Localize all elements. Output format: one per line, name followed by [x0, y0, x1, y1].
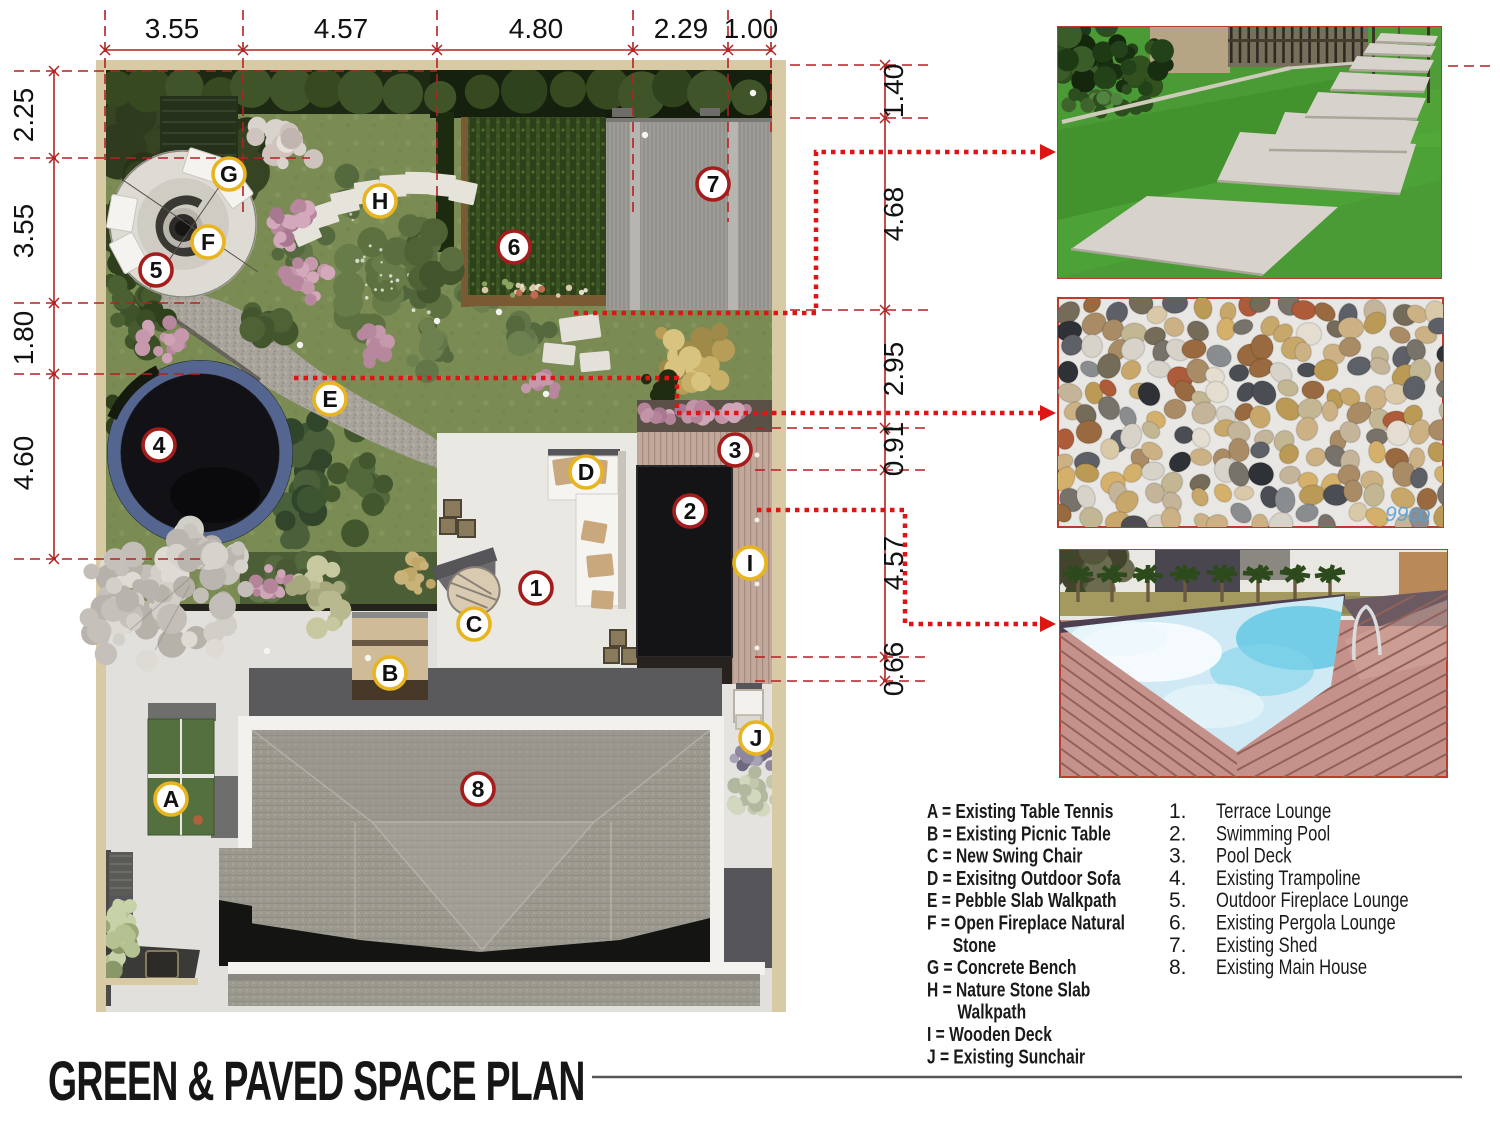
svg-text:H: H: [372, 188, 389, 214]
svg-text:4.60: 4.60: [8, 436, 39, 491]
svg-text:5.: 5.: [1169, 889, 1187, 912]
svg-text:A: A: [163, 786, 180, 812]
svg-text:F = Open Fireplace Natural: F = Open Fireplace Natural: [927, 912, 1125, 934]
svg-text:4.57: 4.57: [314, 13, 369, 44]
svg-text:1.40: 1.40: [878, 64, 909, 119]
svg-text:I = Wooden Deck: I = Wooden Deck: [927, 1023, 1052, 1045]
svg-text:Outdoor Fireplace Lounge: Outdoor Fireplace Lounge: [1216, 889, 1409, 912]
svg-text:F: F: [201, 229, 215, 255]
svg-text:Stone: Stone: [953, 934, 996, 956]
svg-text:G: G: [220, 161, 238, 187]
svg-text:E = Pebble Slab Walkpath: E = Pebble Slab Walkpath: [927, 889, 1117, 911]
svg-text:3.55: 3.55: [8, 204, 39, 259]
svg-text:GREEN & PAVED SPACE PLAN: GREEN & PAVED SPACE PLAN: [48, 1051, 585, 1113]
svg-text:J: J: [750, 725, 763, 751]
svg-text:D: D: [578, 459, 595, 485]
svg-text:4.68: 4.68: [878, 187, 909, 242]
svg-text:A = Existing Table Tennis: A = Existing Table Tennis: [927, 800, 1113, 822]
svg-text:B: B: [382, 660, 399, 686]
svg-text:Existing Main House: Existing Main House: [1216, 956, 1367, 979]
svg-text:C: C: [466, 611, 483, 637]
svg-text:8.: 8.: [1169, 956, 1187, 979]
svg-text:Swimming Pool: Swimming Pool: [1216, 823, 1330, 846]
svg-text:Walkpath: Walkpath: [957, 1001, 1026, 1023]
svg-text:1.00: 1.00: [724, 13, 779, 44]
svg-text:1.: 1.: [1169, 800, 1187, 823]
svg-text:7: 7: [707, 171, 720, 197]
svg-text:D = Exisitng Outdoor Sofa: D = Exisitng Outdoor Sofa: [927, 867, 1121, 889]
svg-text:H = Nature Stone Slab: H = Nature Stone Slab: [927, 979, 1090, 1001]
svg-text:G = Concrete Bench: G = Concrete Bench: [927, 956, 1076, 978]
svg-text:0.91: 0.91: [878, 422, 909, 477]
svg-text:Terrace Lounge: Terrace Lounge: [1216, 800, 1331, 823]
svg-text:3: 3: [729, 437, 742, 463]
svg-text:2.: 2.: [1169, 822, 1187, 845]
svg-text:Existing Pergola Lounge: Existing Pergola Lounge: [1216, 912, 1396, 935]
svg-text:Pool Deck: Pool Deck: [1216, 845, 1292, 868]
svg-text:3.55: 3.55: [145, 13, 200, 44]
svg-text:4.80: 4.80: [509, 13, 564, 44]
svg-text:B = Existing Picnic Table: B = Existing Picnic Table: [927, 822, 1111, 844]
svg-text:2.95: 2.95: [878, 342, 909, 397]
svg-text:0.66: 0.66: [878, 642, 909, 697]
svg-text:6.: 6.: [1169, 912, 1187, 935]
svg-text:Existing Trampoline: Existing Trampoline: [1216, 867, 1361, 890]
svg-text:1.80: 1.80: [8, 311, 39, 366]
svg-text:99co: 99co: [1385, 503, 1431, 526]
svg-text:E: E: [322, 386, 337, 412]
svg-text:4: 4: [153, 432, 166, 458]
svg-text:2.25: 2.25: [8, 88, 39, 143]
svg-text:Existing Shed: Existing Shed: [1216, 934, 1317, 957]
svg-text:3.: 3.: [1169, 845, 1187, 868]
svg-text:2.29: 2.29: [654, 13, 709, 44]
svg-text:I: I: [747, 550, 753, 576]
svg-text:1: 1: [530, 575, 543, 601]
svg-text:J = Existing Sunchair: J = Existing Sunchair: [927, 1045, 1085, 1067]
svg-text:2: 2: [684, 498, 697, 524]
svg-text:C = New Swing Chair: C = New Swing Chair: [927, 845, 1083, 867]
svg-text:4.: 4.: [1169, 867, 1187, 890]
svg-text:8: 8: [472, 776, 485, 802]
svg-text:7.: 7.: [1169, 934, 1187, 957]
svg-text:6: 6: [508, 234, 521, 260]
svg-text:5: 5: [150, 257, 163, 283]
